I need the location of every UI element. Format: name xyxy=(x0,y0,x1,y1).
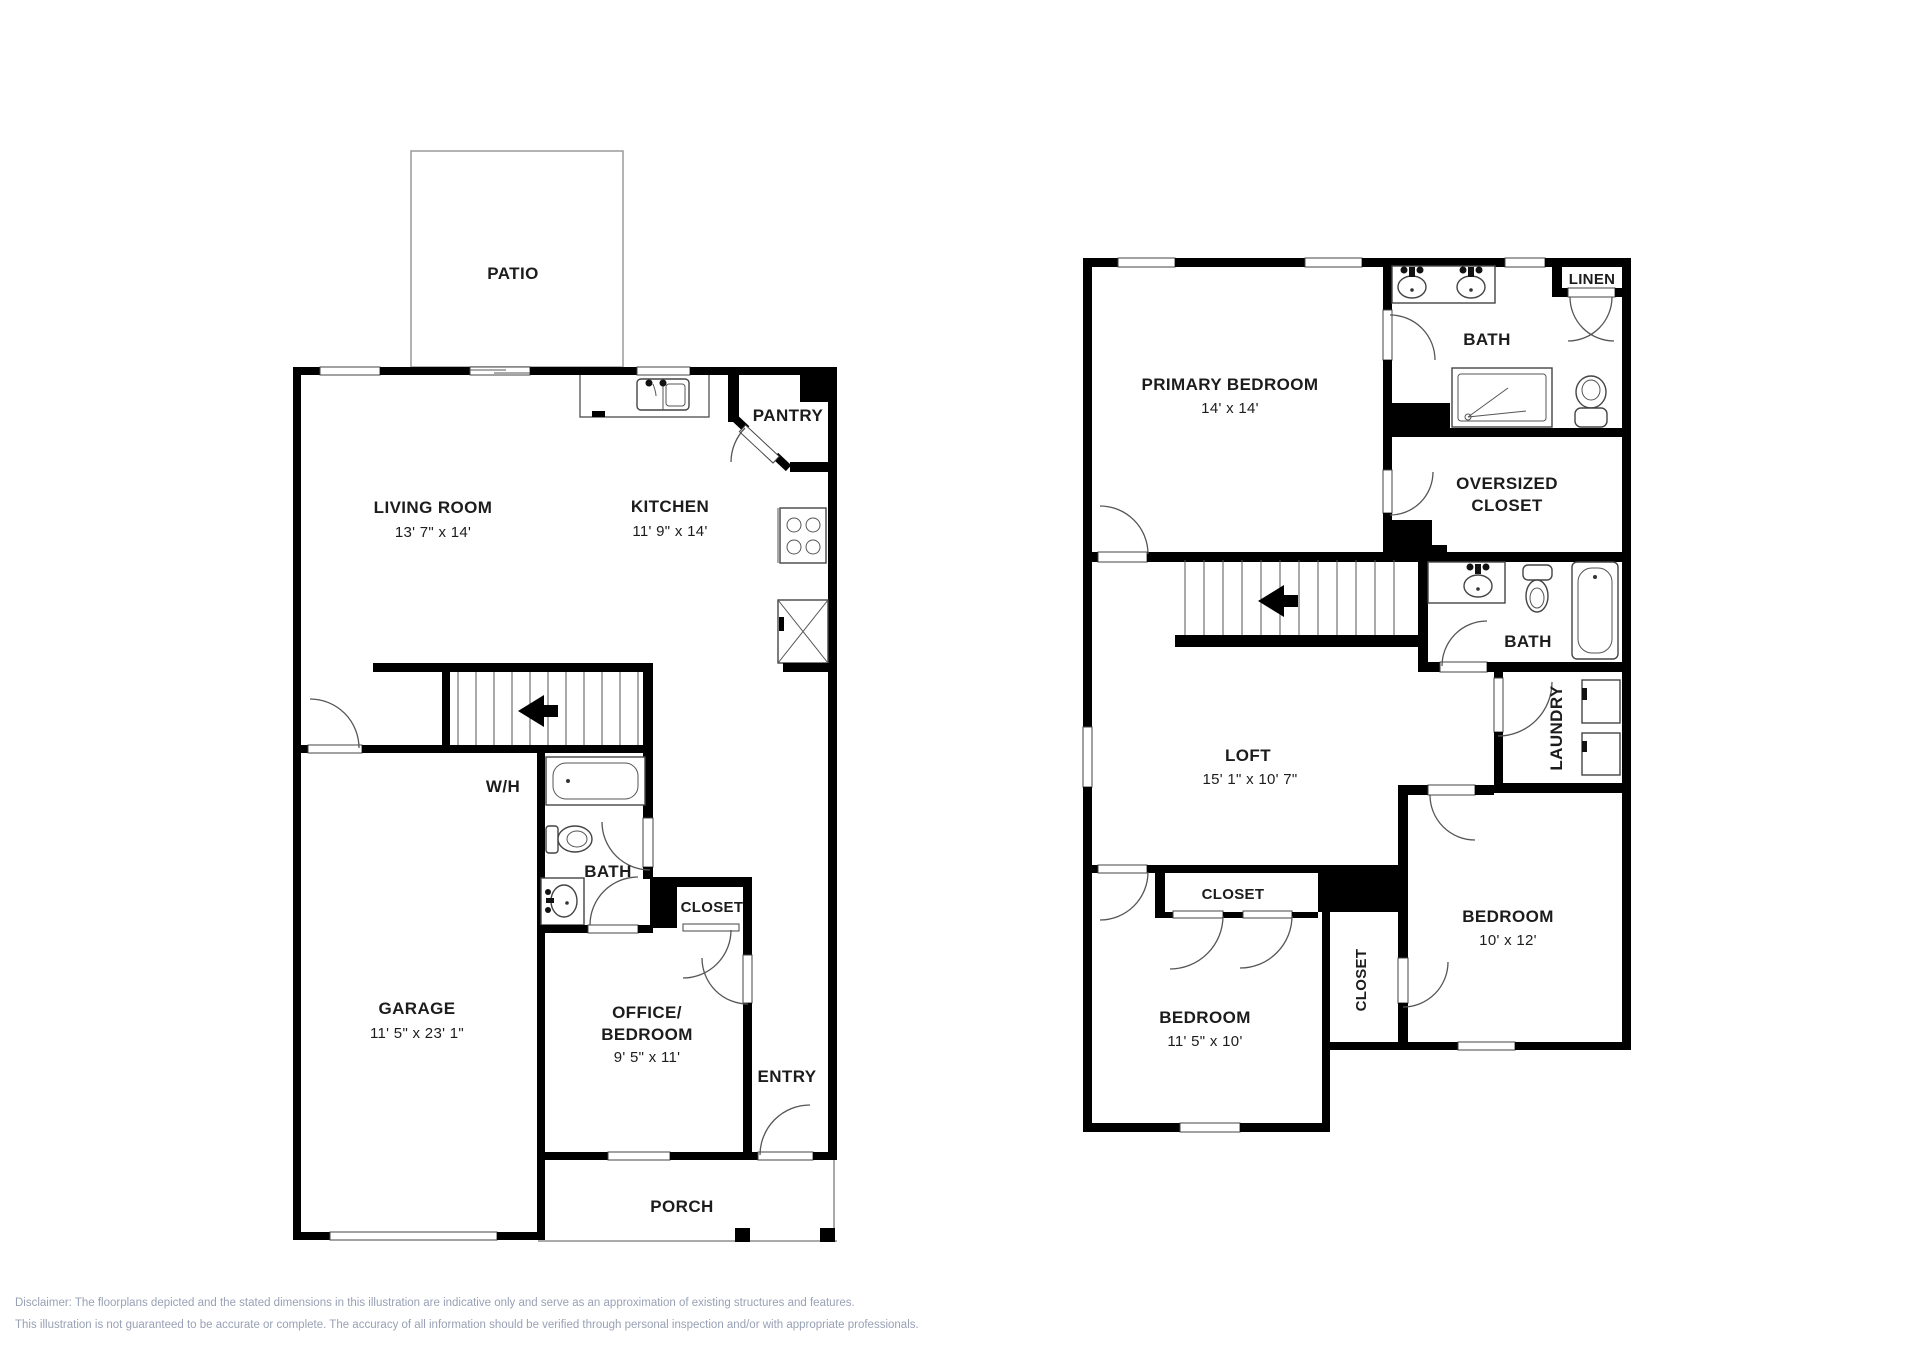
hall-bath-door-arc xyxy=(1442,621,1487,666)
garage-label: GARAGE xyxy=(378,999,455,1018)
kitchen-label: KITCHEN xyxy=(631,497,709,516)
kitchen-counter xyxy=(580,375,709,417)
laundry-door-leaf xyxy=(1494,678,1503,732)
closet-door-arc xyxy=(683,930,731,978)
wall xyxy=(743,877,752,955)
window xyxy=(1083,727,1092,787)
bath-south-door xyxy=(588,925,638,933)
office-door-leaf xyxy=(743,955,752,1003)
front-door-threshold xyxy=(758,1152,813,1160)
window xyxy=(637,367,690,375)
bedroom2-room: BEDROOM 10' x 12' xyxy=(1462,907,1554,949)
wall xyxy=(1383,428,1631,437)
wall xyxy=(1322,1042,1458,1050)
porch-area: PORCH xyxy=(538,1160,837,1242)
window xyxy=(1180,1123,1240,1132)
primary-bath-door-leaf xyxy=(1383,310,1392,360)
garage-dims: 11' 5" x 23' 1" xyxy=(370,1025,464,1042)
loft-dims: 15' 1" x 10' 7" xyxy=(1202,771,1297,788)
shower xyxy=(1452,368,1552,427)
office-label-2: BEDROOM xyxy=(601,1025,693,1044)
bedroom2-door xyxy=(1428,785,1475,795)
wall xyxy=(743,1003,752,1152)
bedroom1-room: BEDROOM 11' 5" x 10' xyxy=(1159,1008,1251,1050)
hall-closet-door-leaf xyxy=(1398,958,1408,1003)
disclaimer: Disclaimer: The floorplans depicted and … xyxy=(15,1297,919,1331)
entry-label: ENTRY xyxy=(758,1067,817,1086)
primary-bedroom-door-arc xyxy=(1100,506,1148,554)
bedroom1-dims: 11' 5" x 10' xyxy=(1167,1033,1242,1050)
bedroom2-door-arc xyxy=(1430,795,1475,840)
closet-door-right xyxy=(1243,911,1292,918)
chase xyxy=(800,375,837,402)
window xyxy=(1305,258,1362,267)
wall xyxy=(1147,865,1318,873)
hall-bath: BATH xyxy=(1418,562,1631,672)
wall xyxy=(1240,1123,1330,1132)
wall xyxy=(690,367,837,375)
bath-first-floor: BATH xyxy=(538,753,653,933)
wall-left xyxy=(293,367,301,1240)
wall-left xyxy=(1083,258,1092,727)
wall xyxy=(380,367,470,375)
window xyxy=(1118,258,1175,267)
toilet xyxy=(1523,565,1552,612)
wall xyxy=(670,1152,758,1160)
bedroom1-closet: CLOSET xyxy=(1155,873,1318,969)
bedroom2-dims: 10' x 12' xyxy=(1479,932,1537,949)
laundry-room: LAUNDRY xyxy=(1494,672,1631,793)
wall xyxy=(538,1152,608,1160)
wall xyxy=(1383,360,1392,428)
closet1-label: CLOSET xyxy=(681,899,744,916)
primary-bath-door-arc xyxy=(1390,315,1435,360)
stairs-second-floor xyxy=(1175,545,1447,662)
wall xyxy=(530,367,637,375)
loft-label: LOFT xyxy=(1225,746,1271,765)
garage-room: GARAGE 11' 5" x 23' 1" xyxy=(370,999,464,1042)
water-heater-label: W/H xyxy=(486,777,520,796)
bath-south-door-arc xyxy=(590,877,638,925)
chase xyxy=(1318,865,1400,912)
primary-bedroom-dims: 14' x 14' xyxy=(1201,400,1259,417)
garage-door xyxy=(330,1232,497,1240)
stairs-first-floor xyxy=(373,663,653,748)
living-room: LIVING ROOM 13' 7" x 14' xyxy=(374,498,493,541)
kitchen-room: KITCHEN 11' 9" x 14' xyxy=(631,497,709,540)
disclaimer-line-1: Disclaimer: The floorplans depicted and … xyxy=(15,1297,855,1309)
hall-closet-label: CLOSET xyxy=(1353,949,1370,1012)
bath-vanity xyxy=(541,878,584,925)
stairs-direction-arrow xyxy=(518,695,544,727)
linen-door xyxy=(1568,288,1615,297)
wall-right xyxy=(828,367,837,1160)
primary-bedroom-door xyxy=(1098,552,1147,562)
disclaimer-line-2: This illustration is not guaranteed to b… xyxy=(15,1319,919,1331)
closet-door-left xyxy=(1173,911,1223,918)
office-bedroom-room: OFFICE/ BEDROOM 9' 5" x 11' xyxy=(601,1003,693,1066)
chase xyxy=(650,877,677,928)
floorplan-canvas: PATIO PORCH xyxy=(0,0,1920,1358)
wall xyxy=(1147,552,1631,562)
wall xyxy=(1175,258,1305,267)
bedroom1-closet-label: CLOSET xyxy=(1202,886,1265,903)
wall-right xyxy=(1622,258,1631,1050)
pantry-label: PANTRY xyxy=(753,406,824,425)
wall xyxy=(1083,552,1098,562)
first-floor-plan: PATIO PORCH xyxy=(293,151,837,1242)
garage-entry-door-arc xyxy=(310,699,359,748)
primary-bedroom: PRIMARY BEDROOM 14' x 14' xyxy=(1142,375,1319,417)
office-dims: 9' 5" x 11' xyxy=(614,1049,681,1066)
closet-first-floor: CLOSET xyxy=(650,877,752,978)
wall xyxy=(813,1152,837,1160)
wall xyxy=(1083,865,1098,873)
wall xyxy=(1475,785,1494,795)
living-room-dims: 13' 7" x 14' xyxy=(395,524,471,541)
wall xyxy=(362,745,653,753)
window xyxy=(1458,1042,1515,1050)
wall xyxy=(1383,265,1392,310)
wall xyxy=(1515,1042,1631,1050)
primary-bath-label: BATH xyxy=(1463,330,1511,349)
bedroom1-door-arc xyxy=(1100,872,1148,920)
loft-room: LOFT 15' 1" x 10' 7" xyxy=(1202,746,1297,788)
porch-post xyxy=(735,1228,750,1242)
hall-bath-door xyxy=(1440,662,1487,672)
washer xyxy=(1582,680,1620,723)
patio-sliding-door xyxy=(470,367,530,375)
closet-door xyxy=(683,924,739,931)
wall xyxy=(537,753,545,1240)
window xyxy=(320,367,380,375)
office-label-1: OFFICE/ xyxy=(612,1003,682,1022)
pantry-room: PANTRY xyxy=(728,375,837,472)
kitchen-dims: 11' 9" x 14' xyxy=(632,523,707,540)
laundry-door-arc xyxy=(1498,682,1552,736)
linen-label: LINEN xyxy=(1569,271,1616,288)
wall xyxy=(293,745,308,753)
patio-label: PATIO xyxy=(487,264,538,283)
wall xyxy=(1083,1123,1180,1132)
oversized-closet-label-2: CLOSET xyxy=(1471,496,1543,515)
laundry-label: LAUNDRY xyxy=(1547,685,1566,771)
bathtub xyxy=(1572,562,1618,659)
oversized-closet-door-arc xyxy=(1390,472,1433,515)
dryer xyxy=(1582,733,1620,775)
pantry-door-leaf xyxy=(739,425,779,463)
second-floor-plan: BATH LINEN OVERSIZED CLOSET xyxy=(1083,258,1631,1132)
floorplan-page: PATIO PORCH xyxy=(0,0,1920,1358)
oversized-closet: OVERSIZED CLOSET xyxy=(1456,474,1558,515)
wall xyxy=(1383,437,1392,470)
wall xyxy=(1322,873,1330,1132)
wall xyxy=(293,1232,330,1240)
linen-closet: LINEN xyxy=(1552,258,1625,341)
window xyxy=(1505,258,1545,267)
garage-entry-threshold xyxy=(308,745,362,753)
oversized-closet-door-leaf xyxy=(1383,470,1392,513)
hall-closet-door-arc xyxy=(1403,962,1448,1007)
bedroom2-label: BEDROOM xyxy=(1462,907,1554,926)
bedroom1-door xyxy=(1098,865,1147,873)
window xyxy=(608,1152,670,1160)
office-door-arc xyxy=(702,958,748,1004)
stove xyxy=(778,508,826,563)
chase xyxy=(1392,403,1450,428)
toilet xyxy=(1575,376,1607,427)
refrigerator xyxy=(778,600,828,663)
bath-door-leaf xyxy=(643,818,653,867)
porch-post xyxy=(820,1228,835,1242)
front-door-arc xyxy=(760,1105,810,1155)
patio-area: PATIO xyxy=(411,151,623,367)
living-room-label: LIVING ROOM xyxy=(374,498,493,517)
stairs-direction-arrow xyxy=(1258,585,1284,617)
porch-label: PORCH xyxy=(650,1197,713,1216)
dishwasher-mark xyxy=(592,411,605,417)
wall xyxy=(1398,785,1428,795)
oversized-closet-label-1: OVERSIZED xyxy=(1456,474,1558,493)
primary-bedroom-label: PRIMARY BEDROOM xyxy=(1142,375,1319,394)
toilet xyxy=(546,826,592,853)
wall xyxy=(783,663,837,672)
hall-bath-label: BATH xyxy=(1504,632,1552,651)
bathtub xyxy=(546,757,645,805)
bedroom1-label: BEDROOM xyxy=(1159,1008,1251,1027)
wall-left xyxy=(1083,787,1092,1132)
